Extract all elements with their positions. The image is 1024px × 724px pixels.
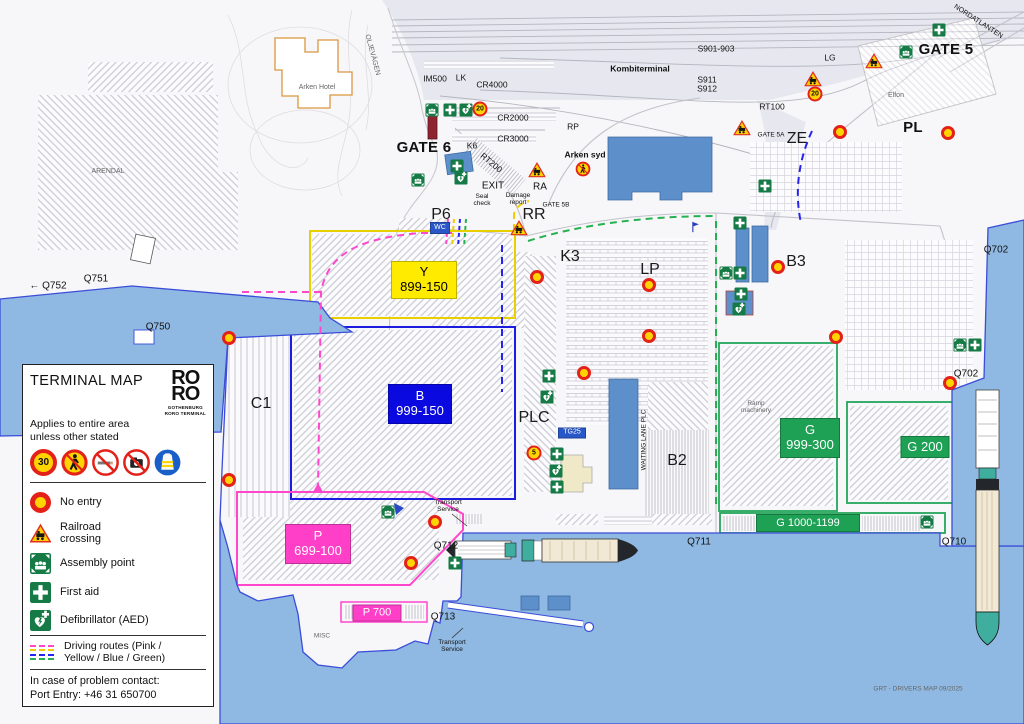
sign-row: 30	[30, 449, 206, 476]
no-photography-sign	[123, 449, 150, 476]
defibrillator-icon	[30, 610, 51, 631]
no-entry-icon	[30, 492, 51, 513]
legend-item-first-aid: First aid	[30, 582, 206, 603]
railroad-crossing-icon	[30, 523, 51, 544]
legend-item-railroad-crossing: Railroad crossing	[30, 521, 206, 546]
roro-logo: RO RO GOTHENBURG RORO TERMINAL	[165, 370, 206, 416]
no-pedestrians-sign	[61, 449, 88, 476]
terminal-map-page: KombiterminalS901-903S911S912IM500LKCR40…	[0, 0, 1024, 724]
speed-30-sign: 30	[30, 449, 57, 476]
legend-item-no-entry: No entry	[30, 492, 206, 513]
legend-item-defibrillator: Defibrillator (AED)	[30, 610, 206, 631]
contact-line: In case of problem contact:	[30, 674, 206, 688]
no-smoking-sign	[92, 449, 119, 476]
hi-vis-vest-sign	[154, 449, 181, 476]
route-color-dashes	[30, 642, 54, 663]
legend-title: TERMINAL MAP	[30, 370, 143, 389]
legend-items: No entry Railroad crossing Assembly poin…	[30, 482, 206, 634]
legend-panel: TERMINAL MAP RO RO GOTHENBURG RORO TERMI…	[22, 364, 214, 707]
legend-driving-routes: Driving routes (Pink / Yellow / Blue / G…	[30, 635, 206, 669]
legend-subtitle: Applies to entire area unless other stat…	[30, 418, 206, 444]
legend-item-assembly-point: Assembly point	[30, 553, 206, 574]
legend-contact: In case of problem contact: Port Entry: …	[30, 669, 206, 702]
first-aid-icon	[30, 582, 51, 603]
contact-phone: Port Entry: +46 31 650700	[30, 688, 206, 702]
assembly-point-icon	[30, 553, 51, 574]
